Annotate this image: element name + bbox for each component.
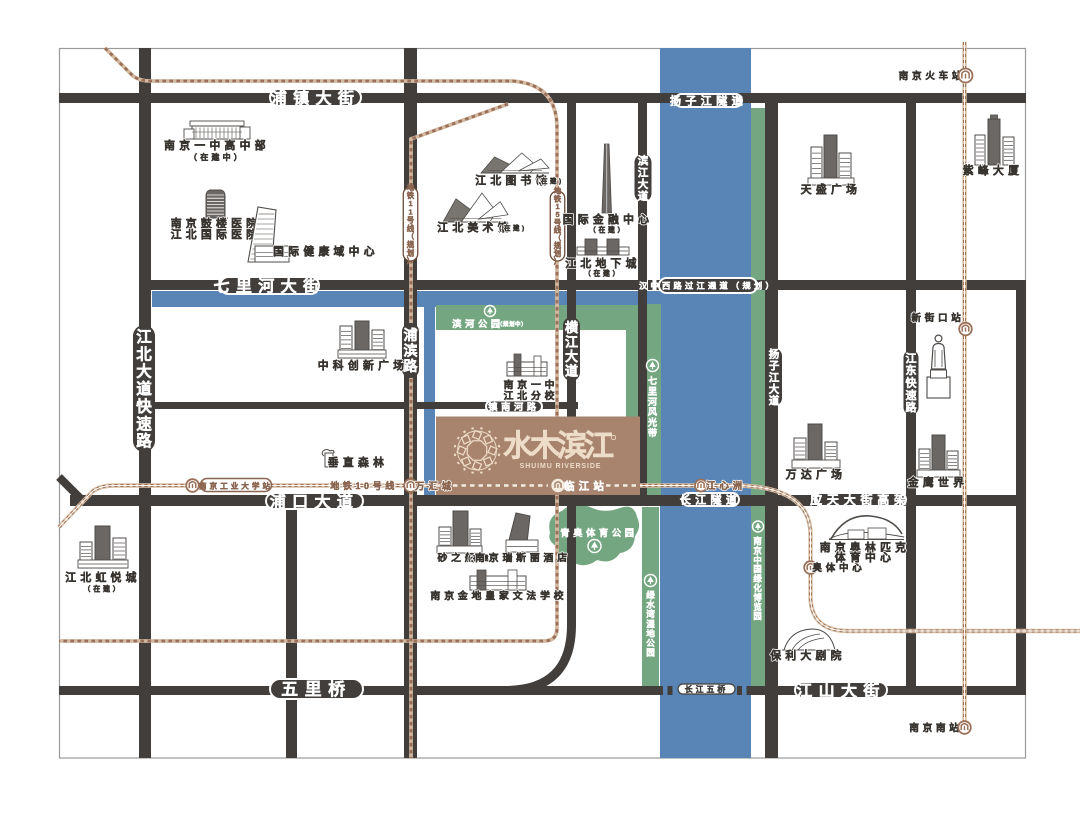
svg-text:江: 江	[136, 328, 152, 346]
svg-text:道: 道	[136, 379, 152, 398]
svg-text:江北虹悦城: 江北虹悦城	[65, 570, 140, 584]
svg-text:里: 里	[648, 386, 657, 396]
svg-text:南京瑞斯丽酒店: 南京瑞斯丽酒店	[475, 551, 571, 564]
svg-text:江: 江	[906, 351, 917, 365]
svg-text:五里桥: 五里桥	[281, 680, 351, 699]
svg-text:江心洲: 江心洲	[706, 480, 746, 492]
svg-text:金鹰世界: 金鹰世界	[907, 475, 968, 489]
svg-text:路: 路	[136, 431, 152, 450]
svg-text:子: 子	[769, 360, 780, 372]
svg-text:江山大街: 江山大街	[796, 681, 886, 700]
svg-text:天盛广场: 天盛广场	[801, 182, 861, 196]
svg-text:浦: 浦	[404, 327, 418, 343]
svg-text:湿: 湿	[646, 618, 655, 629]
svg-text:大: 大	[638, 178, 649, 191]
svg-text:扬: 扬	[769, 348, 780, 361]
svg-text:长江五桥: 长江五桥	[685, 684, 729, 694]
svg-text:水: 水	[646, 599, 655, 610]
svg-text:七: 七	[648, 375, 657, 386]
svg-text:快: 快	[136, 396, 152, 415]
svg-text:江北地下城: 江北地下城	[565, 256, 640, 270]
svg-text:道: 道	[638, 189, 649, 202]
svg-text:新街口站: 新街口站	[911, 312, 964, 324]
svg-text:湾: 湾	[646, 608, 655, 619]
svg-text:国际健康域中心: 国际健康域中心	[273, 244, 379, 258]
svg-text:汉中西路过江通道（规划）: 汉中西路过江通道（规划）	[639, 280, 777, 290]
svg-text:浦镇大街: 浦镇大街	[271, 88, 361, 107]
svg-text:滨: 滨	[404, 343, 418, 359]
svg-text:江: 江	[769, 371, 780, 384]
svg-text:南京金地皇家文法学校: 南京金地皇家文法学校	[431, 589, 568, 602]
svg-text:(在建): (在建)	[499, 223, 526, 232]
svg-text:园: 园	[753, 611, 761, 621]
svg-text:地: 地	[646, 627, 655, 638]
svg-text:体育中心: 体育中心	[835, 550, 895, 564]
svg-text:公: 公	[646, 638, 655, 648]
svg-text:横: 横	[565, 320, 579, 335]
svg-text:（规划中）: （规划中）	[497, 320, 527, 328]
svg-text:大: 大	[565, 349, 578, 364]
svg-text:东: 东	[906, 363, 917, 377]
svg-text:垂直森林: 垂直森林	[328, 455, 388, 469]
svg-text:SHUIMU RIVERSIDE: SHUIMU RIVERSIDE	[520, 463, 602, 470]
svg-text:南京鼓楼医院: 南京鼓楼医院	[171, 216, 262, 230]
svg-text:镇南河路: 镇南河路	[488, 401, 540, 412]
svg-text:地铁10号线: 地铁10号线	[330, 480, 398, 491]
svg-text:江北分校: 江北分校	[504, 389, 559, 402]
svg-text:北: 北	[136, 345, 152, 363]
svg-text:快: 快	[905, 376, 918, 390]
svg-text:园: 园	[646, 648, 655, 658]
svg-text:保利大剧院: 保利大剧院	[769, 648, 845, 662]
svg-text:(在建): (在建)	[536, 176, 563, 185]
svg-text:道: 道	[769, 394, 780, 407]
svg-text:应天大街高架: 应天大街高架	[810, 492, 911, 507]
svg-text:中科创新广场: 中科创新广场	[318, 358, 409, 372]
svg-text:南京一中高中部: 南京一中高中部	[164, 138, 270, 152]
svg-text:长江隧道: 长江隧道	[680, 492, 742, 506]
svg-text:速: 速	[136, 415, 152, 433]
svg-text:浦口大道: 浦口大道	[270, 492, 360, 511]
svg-text:万汇城: 万汇城	[414, 481, 455, 493]
svg-text:绿: 绿	[646, 589, 655, 600]
svg-text:（在建）: （在建）	[83, 584, 122, 593]
svg-text:滨: 滨	[638, 154, 649, 167]
svg-text:（在建中）: （在建中）	[189, 152, 245, 162]
svg-text:带: 带	[648, 427, 657, 438]
svg-text:速: 速	[906, 388, 917, 402]
svg-text:光: 光	[647, 417, 658, 428]
svg-text:七里河大街: 七里河大街	[213, 276, 325, 295]
svg-text:南京工业大学站: 南京工业大学站	[199, 481, 273, 491]
svg-text:河: 河	[648, 396, 658, 407]
svg-text:南京一中: 南京一中	[504, 378, 559, 391]
svg-text:南京南站: 南京南站	[909, 722, 962, 734]
svg-text:）: ）	[407, 257, 414, 266]
svg-text:木: 木	[529, 430, 560, 463]
svg-text:大: 大	[136, 362, 152, 381]
svg-text:风: 风	[648, 407, 658, 417]
svg-text:江: 江	[565, 334, 578, 349]
svg-text:临江站: 临江站	[564, 480, 608, 493]
svg-text:江北国际医院: 江北国际医院	[171, 227, 262, 241]
svg-text:南京火车站: 南京火车站	[899, 70, 966, 82]
svg-text:江: 江	[584, 430, 614, 463]
svg-text:国际金融中心: 国际金融中心	[563, 212, 654, 226]
svg-text:路: 路	[906, 400, 918, 414]
svg-text:大: 大	[769, 382, 780, 395]
svg-text:扬子江隧道: 扬子江隧道	[670, 93, 747, 107]
svg-text:道: 道	[565, 364, 578, 379]
svg-text:）: ）	[554, 257, 561, 266]
svg-text:（在建）: （在建）	[589, 225, 627, 234]
svg-text:万达广场: 万达广场	[785, 467, 846, 481]
svg-text:滨: 滨	[557, 429, 587, 463]
svg-text:江: 江	[638, 166, 649, 179]
svg-text:紫峰大厦: 紫峰大厦	[963, 163, 1023, 177]
svg-text:青奥体育公园: 青奥体育公园	[560, 527, 637, 538]
svg-text:（在建）: （在建）	[584, 269, 622, 278]
